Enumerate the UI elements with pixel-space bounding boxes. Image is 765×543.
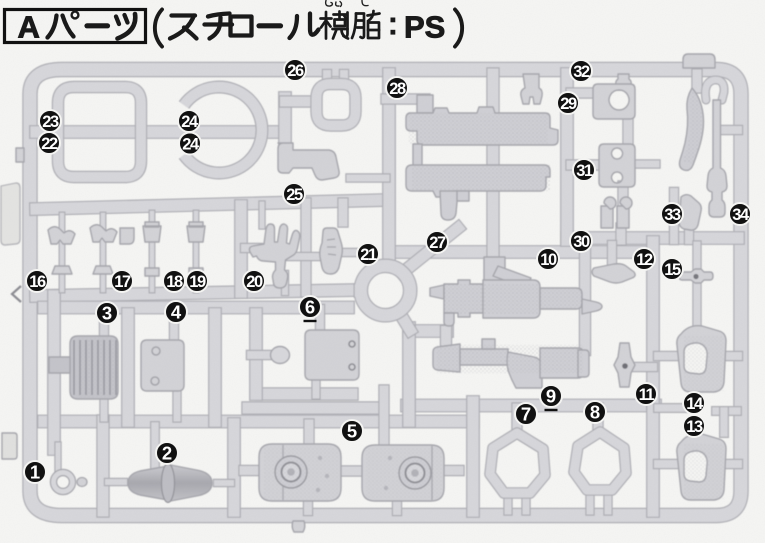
svg-text:34: 34: [732, 206, 750, 224]
svg-text:5: 5: [347, 421, 357, 442]
svg-text:13: 13: [686, 418, 703, 436]
svg-text:26: 26: [287, 62, 304, 80]
svg-text:A: A: [18, 10, 40, 45]
svg-text:19: 19: [189, 273, 206, 291]
svg-text:24: 24: [181, 113, 199, 131]
svg-text:28: 28: [389, 80, 406, 98]
svg-text:2: 2: [162, 443, 172, 464]
svg-text:6: 6: [305, 297, 315, 318]
svg-text:22: 22: [41, 135, 58, 153]
svg-text:31: 31: [576, 162, 593, 180]
svg-text:32: 32: [573, 63, 590, 81]
svg-text:18: 18: [166, 273, 183, 291]
svg-text:8: 8: [590, 402, 600, 423]
svg-text:29: 29: [560, 95, 577, 113]
svg-text:33: 33: [664, 206, 681, 224]
svg-text:21: 21: [360, 246, 377, 264]
svg-text:PS: PS: [404, 10, 445, 45]
svg-text:1: 1: [30, 462, 40, 483]
svg-text:9: 9: [546, 386, 556, 407]
svg-text:7: 7: [521, 404, 531, 425]
svg-text:23: 23: [42, 113, 59, 131]
svg-text:30: 30: [573, 233, 590, 251]
svg-text:15: 15: [664, 261, 681, 279]
svg-text:4: 4: [171, 302, 182, 323]
svg-text:3: 3: [102, 303, 112, 324]
svg-text:16: 16: [29, 273, 46, 291]
svg-text:12: 12: [636, 251, 653, 269]
svg-text:27: 27: [429, 234, 446, 252]
svg-text:24: 24: [182, 135, 200, 153]
svg-text:17: 17: [114, 273, 131, 291]
svg-text:11: 11: [639, 386, 655, 404]
svg-text:25: 25: [286, 186, 303, 204]
svg-text:10: 10: [540, 251, 557, 269]
svg-text:20: 20: [246, 273, 263, 291]
svg-text:14: 14: [686, 395, 704, 413]
